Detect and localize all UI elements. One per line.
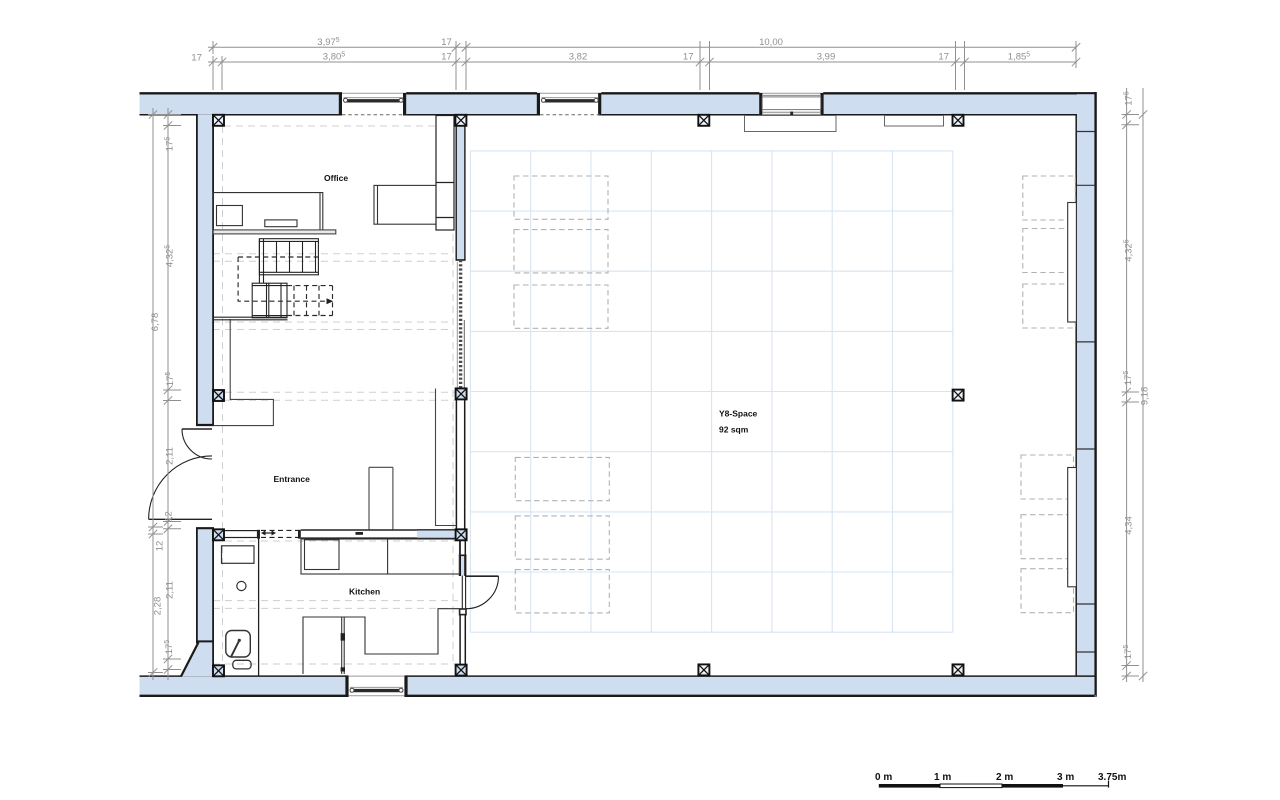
svg-text:3,99: 3,99 <box>817 52 836 63</box>
svg-text:2 m: 2 m <box>996 772 1013 783</box>
svg-text:4,34: 4,34 <box>1124 516 1135 535</box>
svg-text:2,28: 2,28 <box>153 597 164 616</box>
svg-text:Office: Office <box>324 173 348 183</box>
svg-text:3,82: 3,82 <box>569 52 588 63</box>
svg-text:12: 12 <box>164 511 175 522</box>
svg-text:0 m: 0 m <box>875 772 892 783</box>
svg-text:6,78: 6,78 <box>150 313 161 332</box>
svg-text:12: 12 <box>155 541 166 552</box>
svg-text:3.75m: 3.75m <box>1098 772 1126 783</box>
svg-text:10,00: 10,00 <box>759 37 783 48</box>
svg-text:9,18: 9,18 <box>1140 387 1151 406</box>
svg-text:Entrance: Entrance <box>274 474 311 484</box>
svg-text:17: 17 <box>441 37 452 48</box>
svg-text:2,11: 2,11 <box>165 581 176 599</box>
svg-text:2,11: 2,11 <box>165 447 176 465</box>
svg-text:1 m: 1 m <box>934 772 951 783</box>
svg-text:92 sqm: 92 sqm <box>719 425 749 435</box>
svg-text:Y8-Space: Y8-Space <box>719 409 758 419</box>
svg-text:17: 17 <box>441 52 452 63</box>
svg-text:17: 17 <box>683 52 694 63</box>
svg-text:Kitchen: Kitchen <box>349 587 380 597</box>
svg-text:17: 17 <box>191 53 202 64</box>
svg-text:3 m: 3 m <box>1057 772 1074 783</box>
svg-text:17: 17 <box>938 52 949 63</box>
